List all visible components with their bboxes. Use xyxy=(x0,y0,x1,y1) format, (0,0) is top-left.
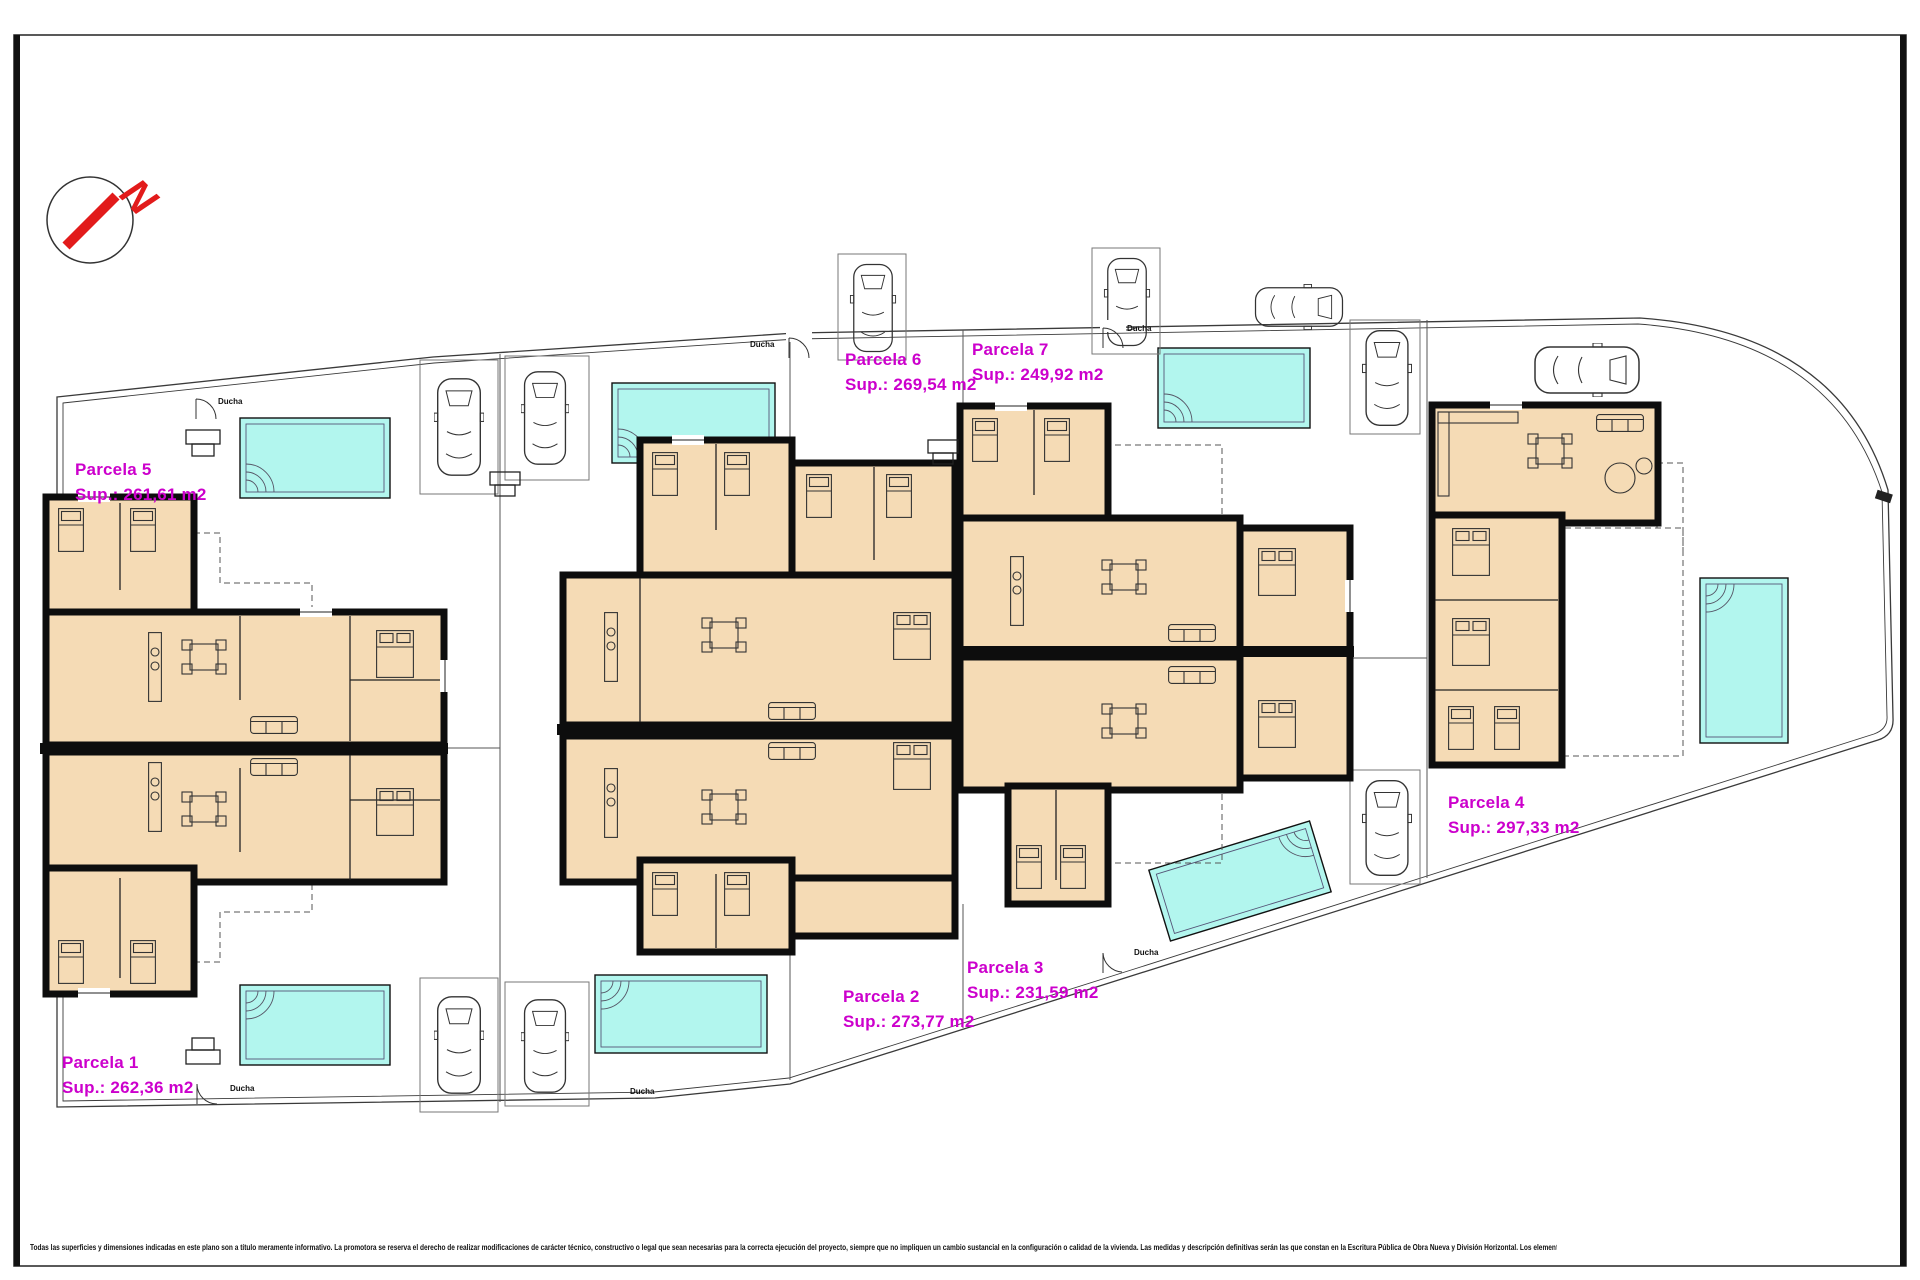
ducha-label: Ducha xyxy=(218,398,242,406)
parcel-label-6: Parcela 6 Sup.: 269,54 m2 xyxy=(845,348,977,397)
party-wall xyxy=(954,646,1354,657)
parcel-label-2: Parcela 2 Sup.: 273,77 m2 xyxy=(843,985,975,1034)
parcel-name: Parcela 1 xyxy=(62,1051,194,1076)
house-duplex-middle xyxy=(557,440,961,952)
ducha-label: Ducha xyxy=(750,341,774,349)
car-icon xyxy=(434,379,484,475)
parcel-label-3: Parcela 3 Sup.: 231,59 m2 xyxy=(967,956,1099,1005)
parcel-name: Parcela 6 xyxy=(845,348,977,373)
parcel-area: Sup.: 269,54 m2 xyxy=(845,373,977,398)
parcel-label-5: Parcela 5 Sup.: 261,61 m2 xyxy=(75,458,207,507)
site-plan-drawing: N xyxy=(0,0,1920,1280)
pool-parcela-7 xyxy=(1158,348,1310,428)
car-icon xyxy=(1535,343,1639,397)
party-wall xyxy=(40,743,448,754)
house-duplex-left xyxy=(40,497,448,994)
party-wall xyxy=(557,724,961,735)
parcel-name: Parcela 3 xyxy=(967,956,1099,981)
car-icon xyxy=(1362,781,1411,876)
entrance-marker xyxy=(1875,490,1893,504)
pool-parcela-5 xyxy=(240,418,390,498)
car-icon xyxy=(1362,331,1411,426)
ducha-label: Ducha xyxy=(1134,949,1158,957)
disclaimer-text: Todas las superficies y dimensiones indi… xyxy=(30,1243,1557,1252)
pool-parcela-2 xyxy=(595,975,767,1053)
car-icon xyxy=(850,265,895,352)
parcel-name: Parcela 5 xyxy=(75,458,207,483)
ducha-label: Ducha xyxy=(630,1088,654,1096)
parcel-area: Sup.: 273,77 m2 xyxy=(843,1010,975,1035)
parcel-name: Parcela 4 xyxy=(1448,791,1580,816)
parcel-label-1: Parcela 1 Sup.: 262,36 m2 xyxy=(62,1051,194,1100)
car-icon xyxy=(521,372,569,464)
parcel-area: Sup.: 231,59 m2 xyxy=(967,981,1099,1006)
pool-parcela-1 xyxy=(240,985,390,1065)
site-plan-page: N Parcela 5 Sup.: 261,61 m2 Parcela 6 Su… xyxy=(0,0,1920,1280)
parcel-name: Parcela 2 xyxy=(843,985,975,1010)
car-icon xyxy=(1256,284,1343,329)
parcel-area: Sup.: 297,33 m2 xyxy=(1448,816,1580,841)
parcel-name: Parcela 7 xyxy=(972,338,1104,363)
parcel-label-7: Parcela 7 Sup.: 249,92 m2 xyxy=(972,338,1104,387)
parcel-label-4: Parcela 4 Sup.: 297,33 m2 xyxy=(1448,791,1580,840)
house-parcela-4 xyxy=(1432,405,1658,765)
ducha-label: Ducha xyxy=(1127,325,1151,333)
car-icon xyxy=(434,997,484,1093)
parcel-area: Sup.: 261,61 m2 xyxy=(75,483,207,508)
pool-parcela-3 xyxy=(1149,821,1331,941)
car-icon xyxy=(521,1000,569,1092)
north-compass: N xyxy=(47,169,167,263)
parcel-area: Sup.: 249,92 m2 xyxy=(972,363,1104,388)
parcel-area: Sup.: 262,36 m2 xyxy=(62,1076,194,1101)
pool-parcela-4 xyxy=(1700,578,1788,743)
ducha-label: Ducha xyxy=(230,1085,254,1093)
